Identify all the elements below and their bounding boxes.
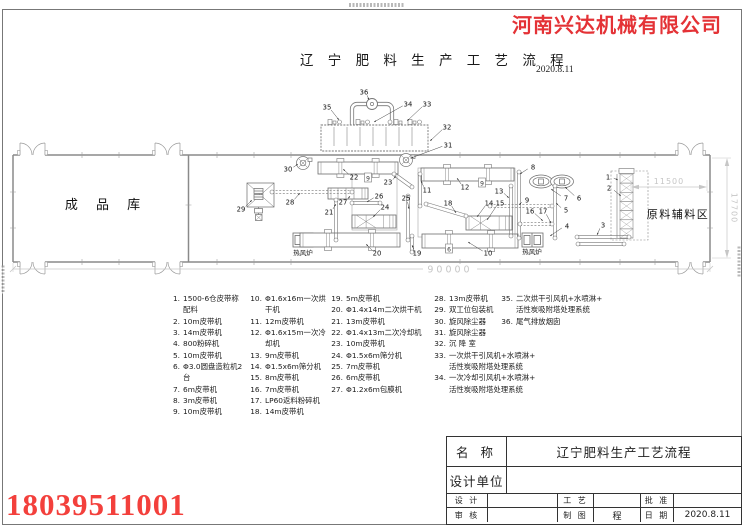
date-value: 2020.8.11 xyxy=(674,508,741,522)
equipment-item: 24.Φ1.5x6m筛分机 xyxy=(329,350,430,361)
part-label-25: 25 xyxy=(402,194,411,202)
equipment-item: 1.1500-6仓皮带称配料 xyxy=(166,293,246,316)
equipment-item: 8.3m皮带机 xyxy=(166,395,246,406)
equipment-item: 22.Φ1.4x13m二次冷却机 xyxy=(329,327,430,338)
equipment-item: 23.10m皮带机 xyxy=(329,338,430,349)
area-label-finished-goods: 成 品 库 xyxy=(65,197,147,213)
equipment-column-1: 1.1500-6仓皮带称配料2.10m皮带机3.14m皮带机4.800粉碎机5.… xyxy=(166,293,246,418)
packing-machine xyxy=(247,183,274,221)
process-value xyxy=(594,494,641,507)
equipment-item: 15.8m皮带机 xyxy=(248,372,327,383)
cad-sheet: { "header": { "company": "河南兴达机械有限公司", "… xyxy=(0,0,750,530)
equipment-column-2: 10.Φ1.6x16m一次烘干机11.12m皮带机12.Φ1.6x15m一次冷却… xyxy=(248,293,327,418)
equipment-item: 11.12m皮带机 xyxy=(248,316,327,327)
part-label-36: 36 xyxy=(360,88,369,96)
part-label-20: 20 xyxy=(373,249,382,257)
equipment-item: 25.7m皮带机 xyxy=(329,361,430,372)
equipment-item: 3.14m皮带机 xyxy=(166,327,246,338)
part-label-2: 2 xyxy=(607,184,611,192)
svg-text:6: 6 xyxy=(447,246,451,253)
part-label-12: 12 xyxy=(461,183,470,191)
part-label-33: 33 xyxy=(423,100,432,108)
equipment-item: 34.一次冷却引风机+水喷淋+活性炭吸附塔处理系统 xyxy=(432,372,542,395)
equipment-item: 14.Φ1.5x6m筛分机 xyxy=(248,361,327,372)
disc-granulators xyxy=(530,175,574,188)
part-label-13: 13 xyxy=(495,187,504,195)
equipment-item: 27.Φ1.2x6m包膜机 xyxy=(329,384,430,395)
draftsman-label: 制 图 xyxy=(558,508,594,522)
designer-label: 设 计 xyxy=(447,494,488,507)
part-label-31: 31 xyxy=(444,141,453,149)
equipment-item: 7.6m皮带机 xyxy=(166,384,246,395)
process-label: 工 艺 xyxy=(558,494,594,507)
equipment-item: 26.6m皮带机 xyxy=(329,372,430,383)
part-label-7: 7 xyxy=(564,194,568,202)
part-label-4: 4 xyxy=(565,222,569,230)
equipment-item: 4.800粉碎机 xyxy=(166,338,246,349)
design-unit-label: 设计单位 xyxy=(447,467,507,493)
part-label-19: 19 xyxy=(413,249,422,257)
part-label-9: 9 xyxy=(525,196,529,204)
equipment-item: 31.旋风除尘器 xyxy=(432,327,542,338)
equipment-item: 6.Φ3.0圆盘造粒机2台 xyxy=(166,361,246,384)
part-label-14: 14 xyxy=(485,199,494,207)
part-label-21: 21 xyxy=(325,208,334,216)
part-label-3: 3 xyxy=(601,221,605,229)
svg-text:9: 9 xyxy=(366,175,370,182)
svg-text:11500: 11500 xyxy=(654,177,684,186)
equipment-column-5: 35.二次烘干引风机+水喷淋+活性炭吸附塔处理系统36.尾气排放烟囱 xyxy=(499,293,614,327)
part-label-11: 11 xyxy=(423,186,432,194)
checker-value xyxy=(488,508,558,522)
svg-text:17700: 17700 xyxy=(730,193,739,223)
part-label-17: 17 xyxy=(539,207,548,215)
part-label-30: 30 xyxy=(284,165,293,173)
part-label-23: 23 xyxy=(384,178,393,186)
furnace-label-right: 热风炉 xyxy=(522,247,542,256)
equipment-item: 36.尾气排放烟囱 xyxy=(499,316,614,327)
date-label: 日 期 xyxy=(641,508,674,522)
part-label-15: 15 xyxy=(496,199,505,207)
part-label-35: 35 xyxy=(323,103,332,111)
name-label: 名 称 xyxy=(447,437,507,466)
part-label-22: 22 xyxy=(350,173,359,181)
approve-value xyxy=(674,494,741,507)
dimension-11500: 11500 xyxy=(631,177,707,191)
equipment-item: 10.Φ1.6x16m一次烘干机 xyxy=(248,293,327,316)
part-label-18: 18 xyxy=(444,199,453,207)
phone-number: 18039511001 xyxy=(6,487,186,523)
title-block: 名 称 辽宁肥料生产工艺流程 设计单位 设 计 工 艺 批 准 审 核 制 图 … xyxy=(446,436,742,525)
draftsman-value: 程 xyxy=(594,508,641,522)
part-label-24: 24 xyxy=(381,203,390,211)
equipment-item: 13.9m皮带机 xyxy=(248,350,327,361)
equipment-item: 33.一次烘干引风机+水喷淋+活性炭吸附塔处理系统 xyxy=(432,350,542,373)
design-unit-value xyxy=(507,467,741,493)
equipment-item: 19.5m皮带机 xyxy=(329,293,430,304)
equipment-list: 1.1500-6仓皮带称配料2.10m皮带机3.14m皮带机4.800粉碎机5.… xyxy=(0,293,750,418)
equipment-item: 12.Φ1.6x15m一次冷却机 xyxy=(248,327,327,350)
dimension-17700: 17700 xyxy=(712,158,739,258)
part-label-34: 34 xyxy=(404,100,413,108)
equipment-item: 9.10m皮带机 xyxy=(166,406,246,417)
furnace-label-left: 热风炉 xyxy=(293,248,313,257)
designer-value xyxy=(488,494,558,507)
approve-label: 批 准 xyxy=(641,494,674,507)
part-label-29: 29 xyxy=(237,205,246,213)
equipment-column-3: 19.5m皮带机20.Φ1.4x14m二次烘干机21.13m皮带机22.Φ1.4… xyxy=(329,293,430,395)
equipment-item: 16.7m皮带机 xyxy=(248,384,327,395)
part-label-27: 27 xyxy=(339,198,348,206)
svg-text:9: 9 xyxy=(480,180,484,187)
equipment-item: 20.Φ1.4x14m二次烘干机 xyxy=(329,304,430,315)
equipment-item: 21.13m皮带机 xyxy=(329,316,430,327)
part-label-8: 8 xyxy=(531,163,535,171)
part-label-10: 10 xyxy=(484,249,493,257)
name-value: 辽宁肥料生产工艺流程 xyxy=(507,437,741,466)
part-label-28: 28 xyxy=(286,198,295,206)
part-label-1: 1 xyxy=(606,173,610,181)
dimension-90000: 90000 xyxy=(10,263,713,276)
equipment-item: 32.沉 降 室 xyxy=(432,338,542,349)
part-label-26: 26 xyxy=(375,192,384,200)
equipment-item: 35.二次烘干引风机+水喷淋+活性炭吸附塔处理系统 xyxy=(499,293,614,316)
area-label-raw-materials: 原料辅料区 xyxy=(647,207,710,221)
equipment-item: 18.14m皮带机 xyxy=(248,406,327,417)
checker-label: 审 核 xyxy=(447,508,488,522)
part-label-5: 5 xyxy=(564,206,568,214)
equipment-item: 2.10m皮带机 xyxy=(166,316,246,327)
part-label-6: 6 xyxy=(577,194,581,202)
equipment-item: 17.LP60返料粉碎机 xyxy=(248,395,327,406)
part-label-32: 32 xyxy=(443,123,452,131)
part-label-16: 16 xyxy=(526,207,535,215)
equipment-item: 5.10m皮带机 xyxy=(166,350,246,361)
svg-text:90000: 90000 xyxy=(427,265,472,276)
